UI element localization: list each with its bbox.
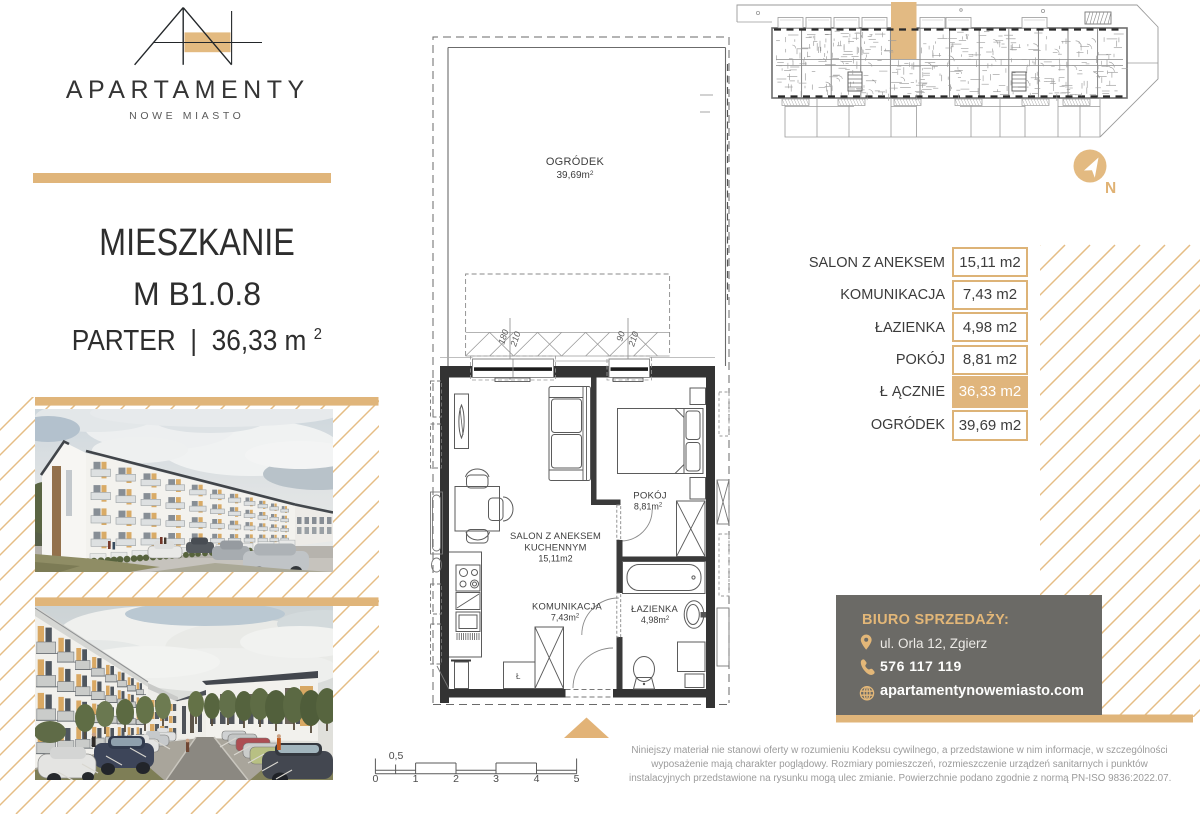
svg-text:1: 1 bbox=[413, 773, 419, 785]
svg-text:ŁAZIENKA: ŁAZIENKA bbox=[631, 603, 678, 614]
svg-text:4: 4 bbox=[534, 773, 540, 785]
svg-text:2: 2 bbox=[453, 773, 459, 785]
svg-text:0: 0 bbox=[372, 773, 378, 785]
svg-text:SALON Z ANEKSEM: SALON Z ANEKSEM bbox=[510, 530, 601, 541]
svg-text:4,98m2: 4,98m2 bbox=[641, 615, 670, 625]
svg-text:N: N bbox=[1105, 180, 1116, 197]
svg-text:5: 5 bbox=[574, 773, 580, 785]
svg-text:POKÓJ: POKÓJ bbox=[633, 491, 667, 502]
svg-text:KOMUNIKACJA: KOMUNIKACJA bbox=[532, 601, 602, 612]
svg-text:7,43m2: 7,43m2 bbox=[551, 613, 580, 623]
svg-text:OGRÓDEK: OGRÓDEK bbox=[546, 155, 605, 168]
svg-text:8,81m2: 8,81m2 bbox=[634, 502, 663, 512]
svg-text:KUCHENNYM: KUCHENNYM bbox=[524, 542, 586, 553]
svg-text:Ł: Ł bbox=[516, 672, 521, 681]
svg-text:0,5: 0,5 bbox=[389, 750, 404, 762]
svg-text:3: 3 bbox=[493, 773, 499, 785]
svg-text:15,11m2: 15,11m2 bbox=[538, 554, 572, 564]
svg-text:39,69m2: 39,69m2 bbox=[557, 170, 594, 181]
